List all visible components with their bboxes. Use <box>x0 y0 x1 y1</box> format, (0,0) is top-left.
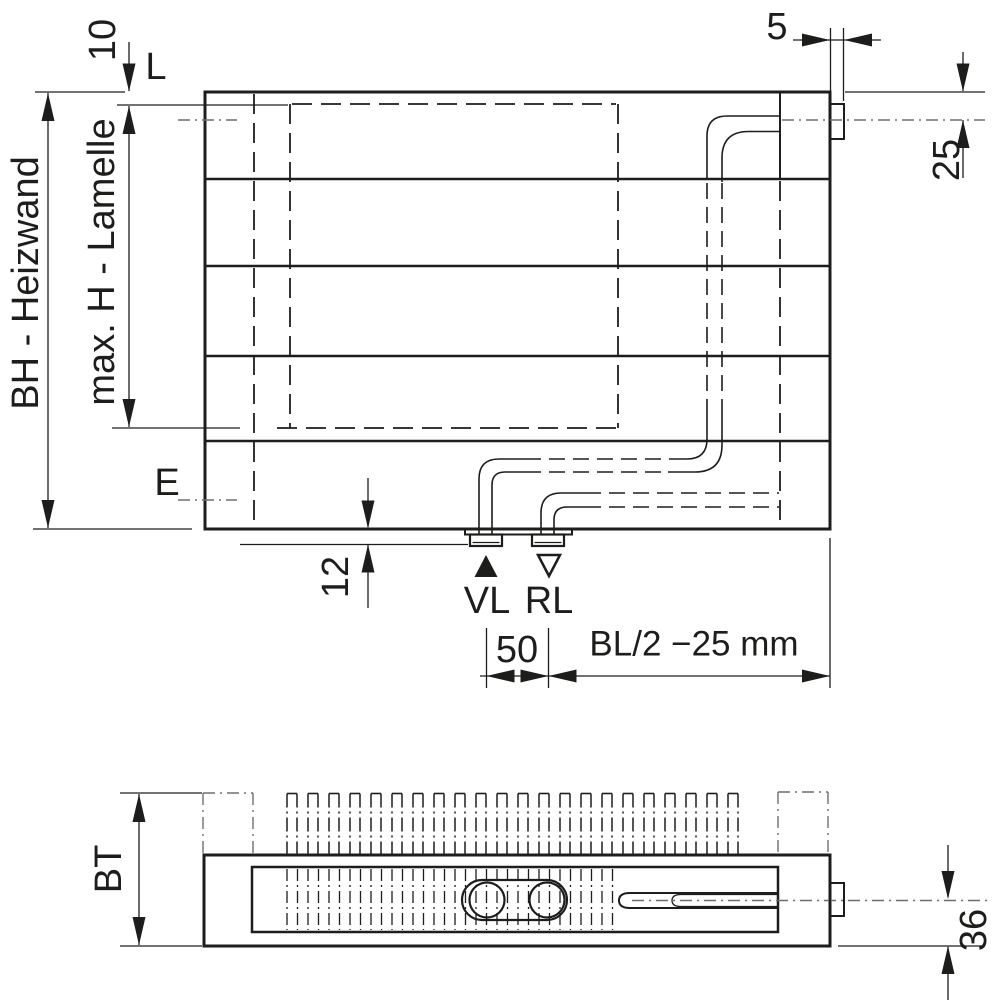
rl-return-label: RL <box>525 580 574 622</box>
arrowhead-up <box>42 93 55 121</box>
arrowhead-right <box>521 670 549 683</box>
radiator-dimension-drawing: BH - Heizwand max. H - Lamelle 10 L 5 25… <box>0 0 1000 1000</box>
arrowhead-left <box>844 34 872 47</box>
plan-view <box>203 792 988 946</box>
pipe-segment <box>492 472 525 534</box>
arrowhead-right <box>802 670 830 683</box>
side-connection-stub <box>830 104 844 139</box>
supply-port-stub <box>470 535 502 547</box>
technical-drawing-page: BH - Heizwand max. H - Lamelle 10 L 5 25… <box>0 0 1000 1000</box>
dim-50-value: 50 <box>496 629 538 671</box>
dim-5-value: 5 <box>766 6 787 48</box>
return-flow-icon <box>538 555 560 576</box>
dim-10-value: 10 <box>82 19 124 61</box>
arrowhead-left <box>487 670 515 683</box>
bt-depth-label: BT <box>88 845 130 894</box>
arrowhead-down <box>123 64 136 92</box>
l-connection-label: L <box>145 46 166 88</box>
arrowhead-down <box>42 500 55 528</box>
dim-25-value: 25 <box>926 139 968 181</box>
dim-12-value: 12 <box>315 556 357 598</box>
arrowhead-right <box>802 34 830 47</box>
arrowhead-up <box>123 106 136 134</box>
supply-flow-icon <box>475 555 498 577</box>
dim-bl2-value: BL/2 −25 mm <box>589 625 798 664</box>
plan-core-outline <box>252 867 778 932</box>
pipe-segment <box>722 132 779 183</box>
panel-seam-lines <box>205 179 830 441</box>
plan-side-stub <box>830 883 844 916</box>
arrowhead-down <box>362 501 375 529</box>
pipe-segment <box>479 459 525 534</box>
hidden-edges <box>254 94 780 528</box>
dim-36-value: 36 <box>953 909 995 951</box>
arrowhead-down <box>133 917 146 945</box>
vl-supply-label: VL <box>464 580 510 622</box>
lamelle-fins <box>287 794 738 855</box>
arrowhead-down <box>123 399 136 427</box>
max-h-lamelle-label: max. H - Lamelle <box>81 118 123 405</box>
arrowhead-down <box>957 64 970 92</box>
front-view-dimensions: BH - Heizwand max. H - Lamelle 10 L 5 25… <box>5 6 985 688</box>
return-port-stub <box>532 535 564 547</box>
front-view <box>178 92 985 577</box>
pipe-segment <box>668 415 722 472</box>
arrowhead-up <box>133 794 146 822</box>
return-port-circle <box>530 883 565 918</box>
bh-heizwand-label: BH - Heizwand <box>5 156 47 409</box>
e-connection-label: E <box>154 462 179 504</box>
pipe-segment <box>676 415 707 459</box>
arrowhead-down <box>942 871 955 899</box>
arrowhead-up <box>362 545 375 573</box>
radiator-body-outline <box>205 92 830 529</box>
pipe-segment <box>707 116 779 180</box>
plan-view-dimensions: BT 36 <box>88 793 995 1000</box>
arrowhead-left <box>549 670 577 683</box>
